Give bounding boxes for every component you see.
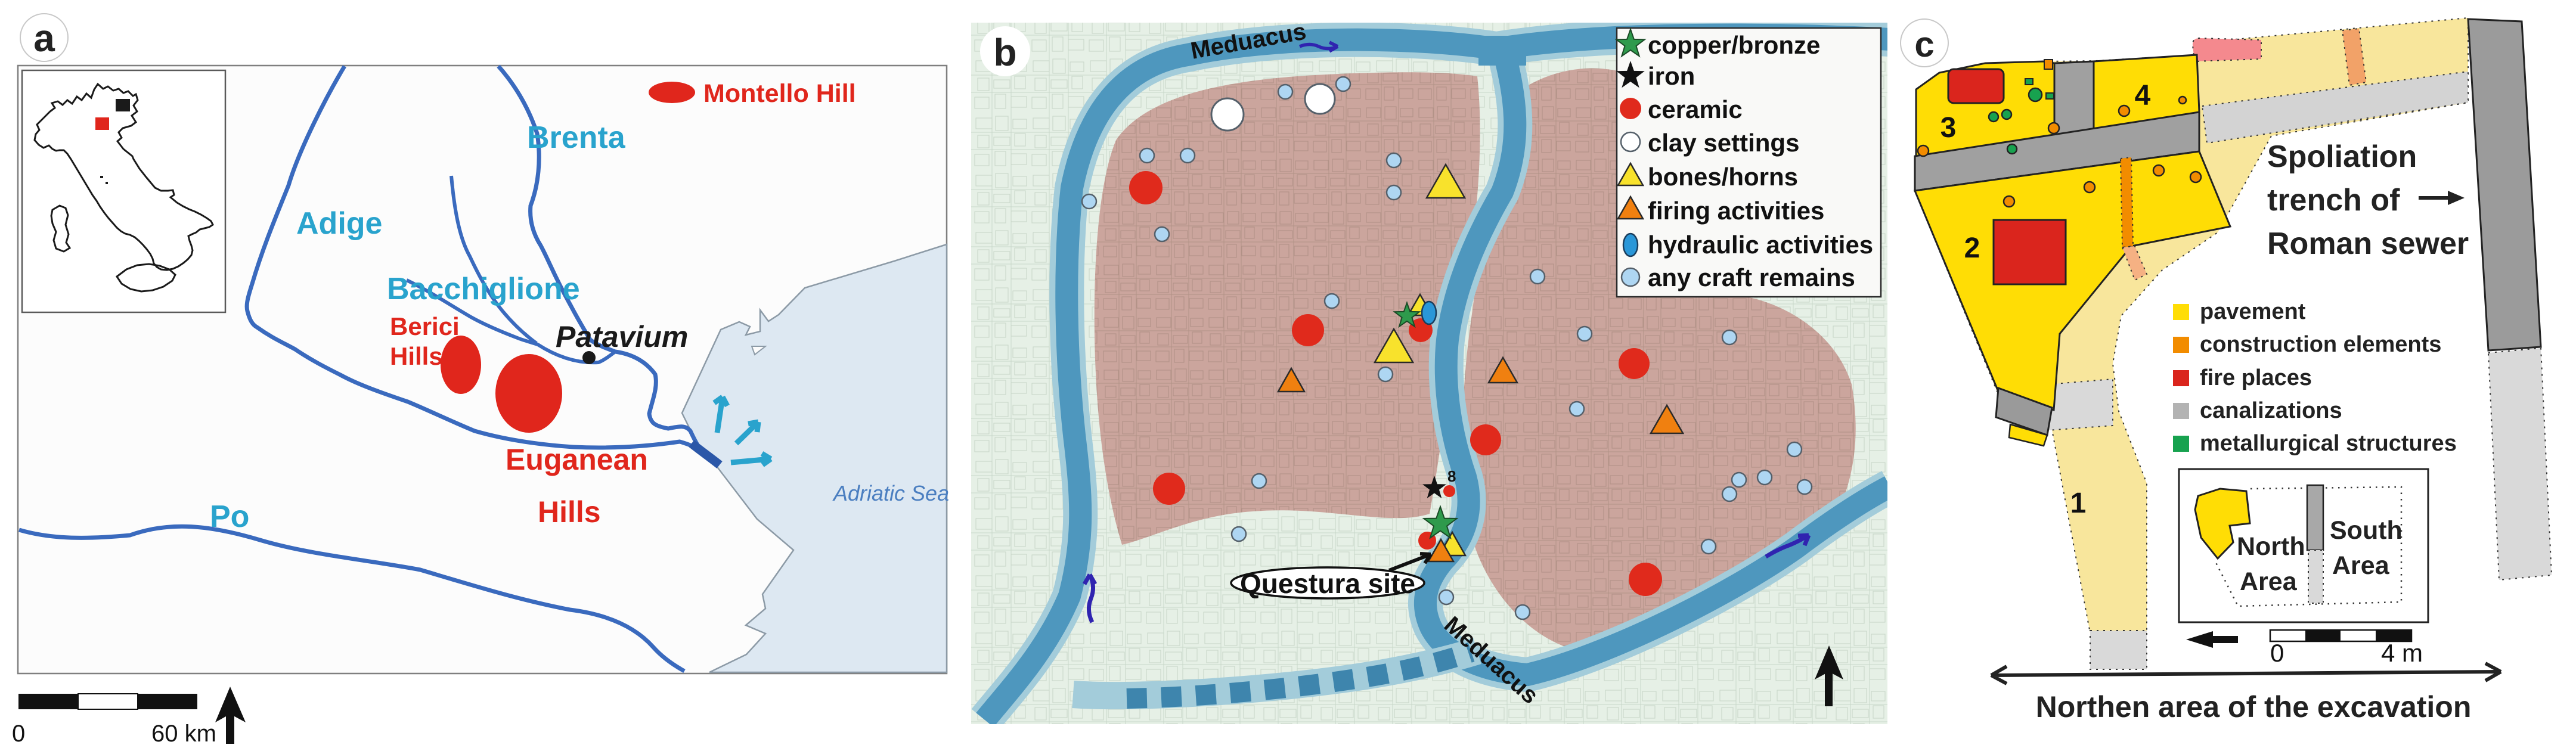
svg-text:0: 0 <box>2270 639 2284 667</box>
svg-text:2: 2 <box>1964 232 1980 264</box>
svg-text:Montello Hill: Montello Hill <box>703 79 856 108</box>
svg-text:Hills: Hills <box>390 342 443 370</box>
svg-text:c: c <box>1914 24 1934 64</box>
svg-text:4: 4 <box>2135 80 2151 111</box>
svg-text:Spoliation: Spoliation <box>2267 139 2417 174</box>
svg-text:construction elements: construction elements <box>2200 332 2441 357</box>
svg-text:Euganean: Euganean <box>506 443 648 476</box>
svg-text:ceramic: ceramic <box>1648 95 1743 123</box>
svg-text:firing activities: firing activities <box>1648 197 1824 225</box>
svg-text:Berici: Berici <box>390 312 460 340</box>
svg-text:metallurgical structures: metallurgical structures <box>2200 431 2457 456</box>
svg-text:fire places: fire places <box>2200 365 2312 390</box>
svg-text:pavement: pavement <box>2200 299 2306 324</box>
svg-text:trench of: trench of <box>2267 183 2400 218</box>
svg-text:copper/bronze: copper/bronze <box>1648 31 1820 59</box>
svg-text:hydraulic activities: hydraulic activities <box>1648 231 1873 259</box>
svg-text:iron: iron <box>1648 62 1695 90</box>
svg-text:canalizations: canalizations <box>2200 398 2342 423</box>
svg-text:Po: Po <box>210 499 249 534</box>
svg-text:Area: Area <box>2240 567 2298 596</box>
svg-text:4 m: 4 m <box>2381 639 2423 667</box>
svg-text:Questura site: Questura site <box>1240 568 1415 599</box>
svg-text:Brenta: Brenta <box>527 120 626 155</box>
svg-text:bones/horns: bones/horns <box>1648 163 1798 191</box>
svg-text:Hills: Hills <box>538 495 601 529</box>
svg-text:Northen area of the excavation: Northen area of the excavation <box>2036 690 2472 724</box>
svg-text:South: South <box>2330 516 2403 545</box>
svg-text:3: 3 <box>1940 112 1957 144</box>
svg-text:8: 8 <box>1447 467 1456 485</box>
svg-text:60 km: 60 km <box>151 721 216 747</box>
svg-text:Area: Area <box>2332 551 2390 580</box>
svg-text:clay settings: clay settings <box>1648 129 1799 157</box>
svg-text:Patavium: Patavium <box>556 320 688 353</box>
svg-text:Roman sewer: Roman sewer <box>2267 226 2469 261</box>
svg-text:North: North <box>2237 532 2305 561</box>
svg-text:0: 0 <box>12 721 25 747</box>
svg-text:any craft remains: any craft remains <box>1648 263 1855 291</box>
svg-text:Adige: Adige <box>296 206 382 241</box>
svg-text:a: a <box>33 17 55 60</box>
svg-text:b: b <box>993 31 1016 74</box>
svg-text:1: 1 <box>2070 488 2087 519</box>
svg-text:Adriatic Sea: Adriatic Sea <box>832 481 949 505</box>
svg-text:Bacchiglione: Bacchiglione <box>387 272 580 306</box>
